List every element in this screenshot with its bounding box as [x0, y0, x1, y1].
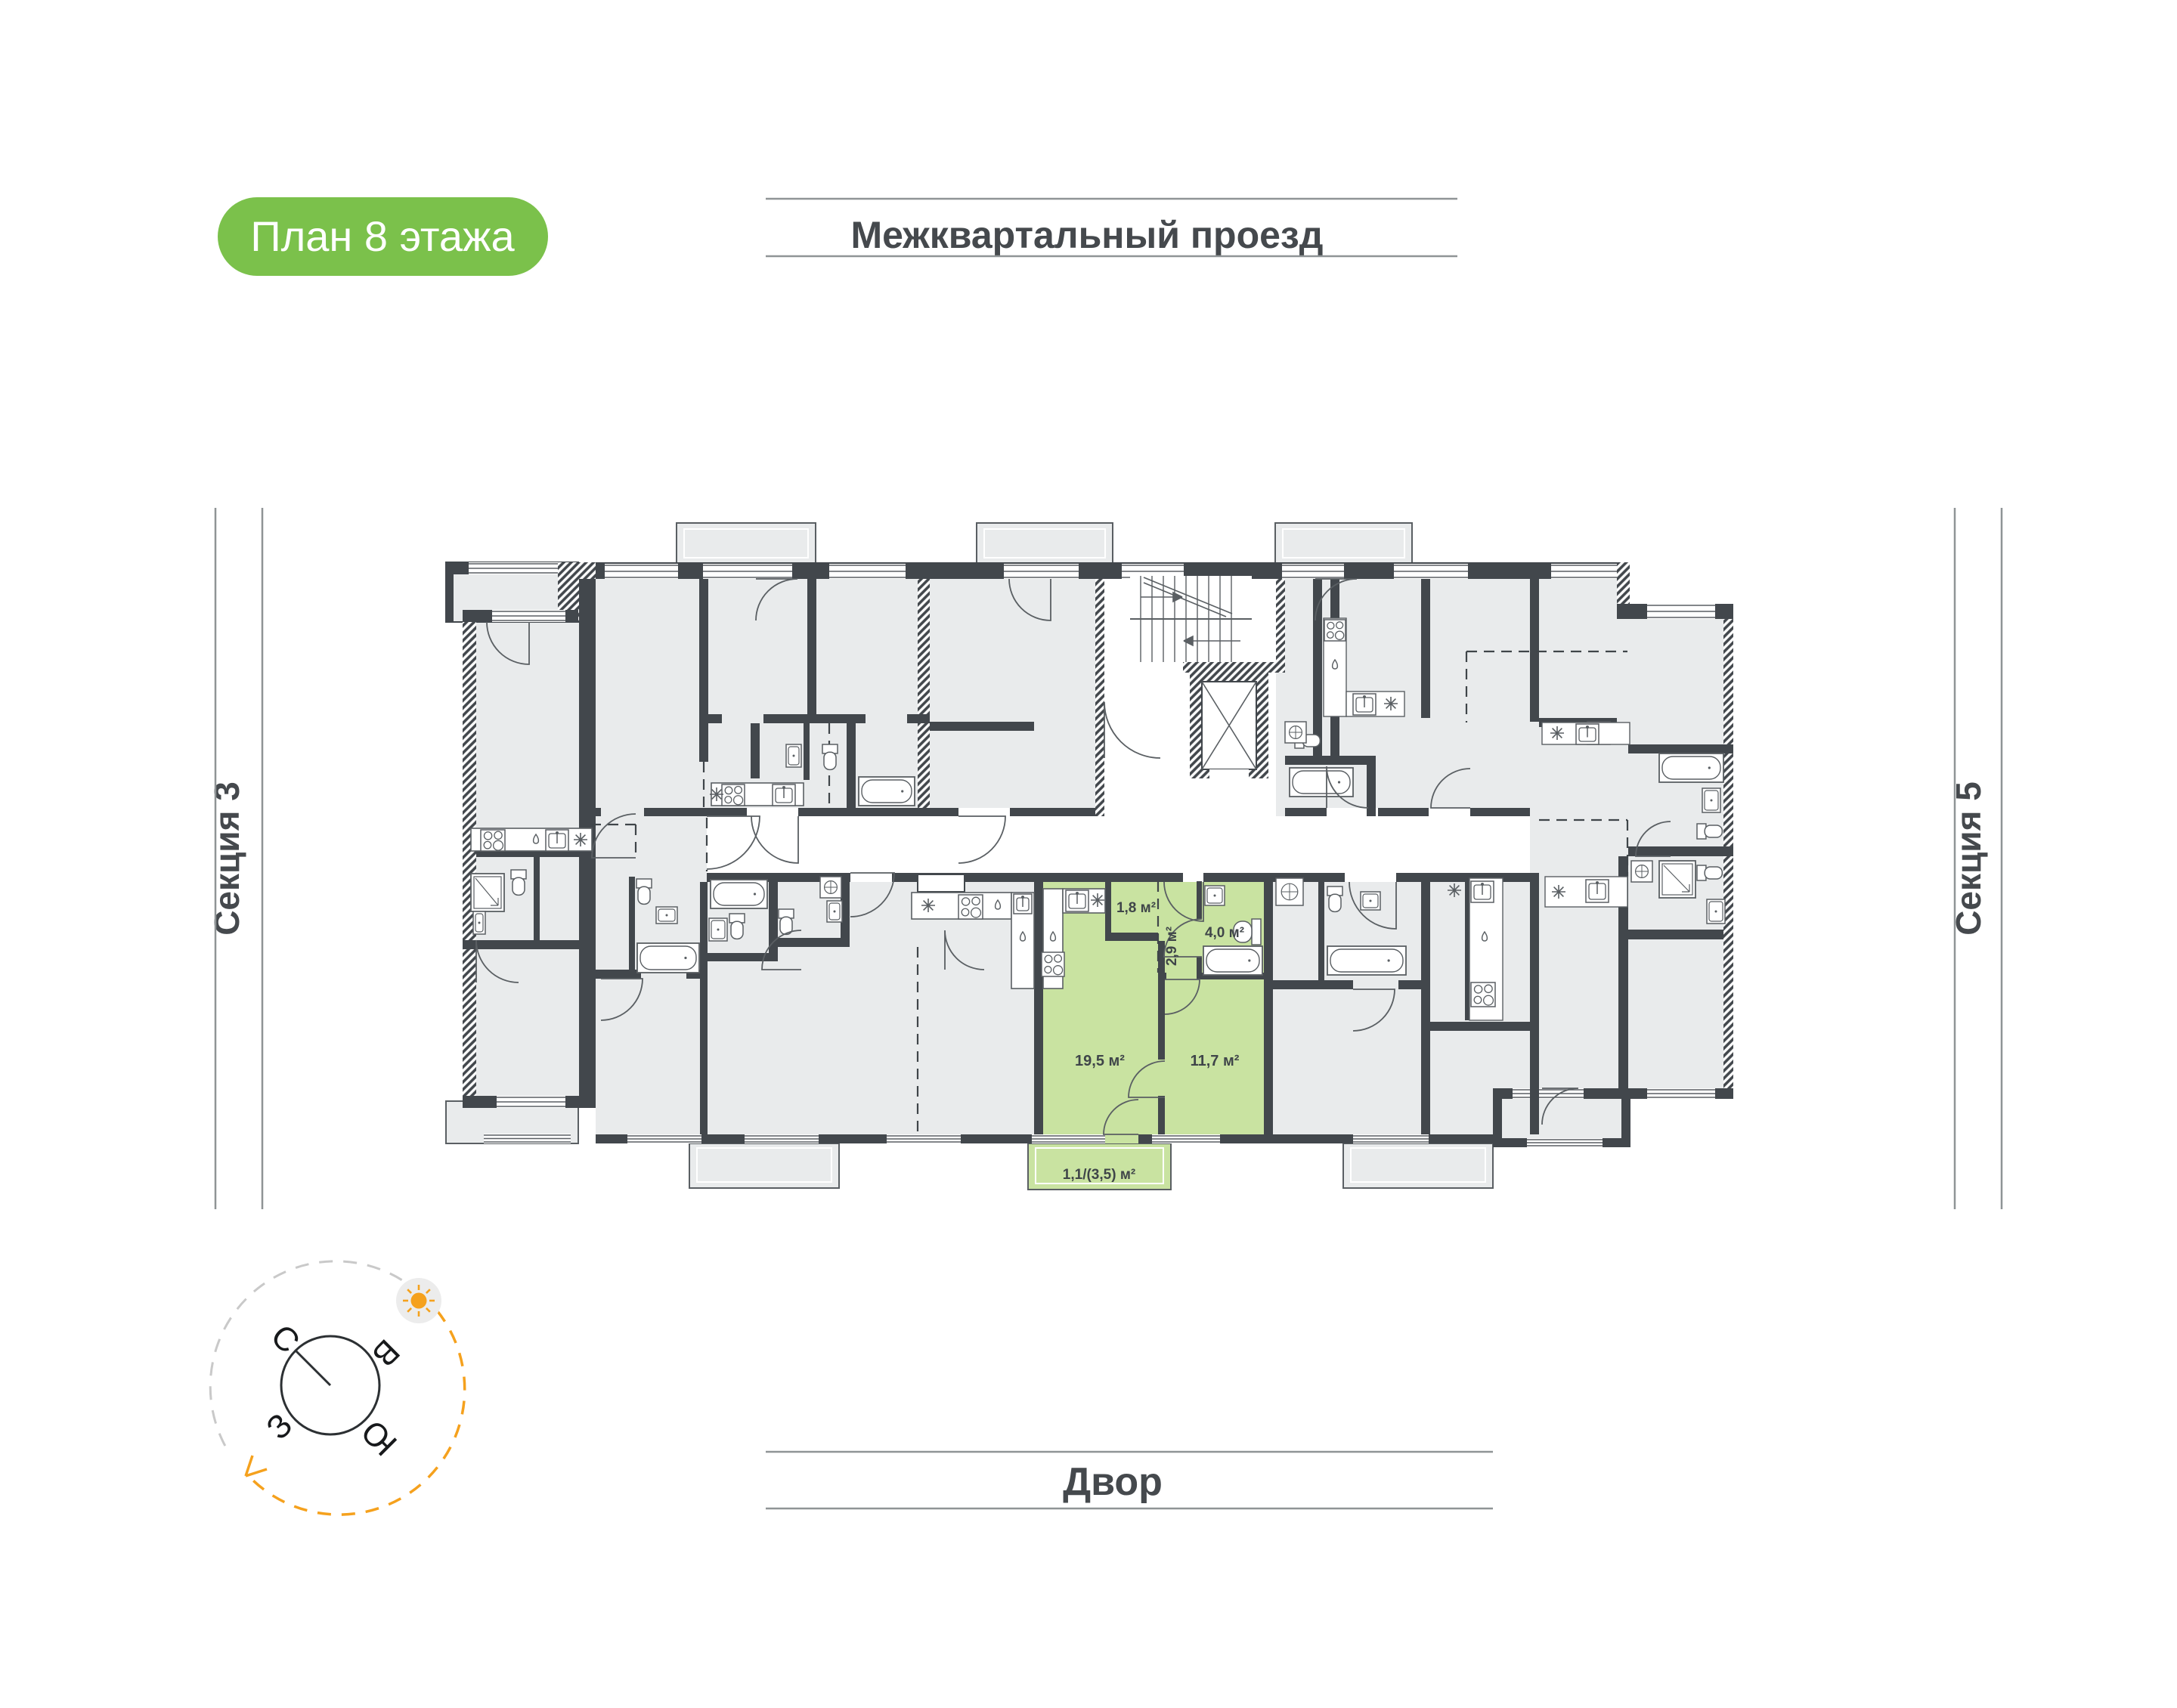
svg-text:1,8 м²: 1,8 м²	[1116, 900, 1156, 916]
svg-text:1,1/(3,5) м²: 1,1/(3,5) м²	[1063, 1167, 1135, 1183]
svg-text:План 8 этажа: План 8 этажа	[250, 212, 515, 260]
svg-text:11,7 м²: 11,7 м²	[1191, 1053, 1240, 1069]
svg-text:Межквартальный проезд: Межквартальный проезд	[850, 214, 1323, 256]
svg-text:Двор: Двор	[1063, 1460, 1163, 1504]
svg-text:19,5 м²: 19,5 м²	[1075, 1053, 1125, 1069]
svg-text:Секция 3: Секция 3	[207, 781, 246, 936]
svg-text:4,0 м²: 4,0 м²	[1205, 925, 1244, 941]
svg-text:2,9 м²: 2,9 м²	[1164, 927, 1180, 966]
